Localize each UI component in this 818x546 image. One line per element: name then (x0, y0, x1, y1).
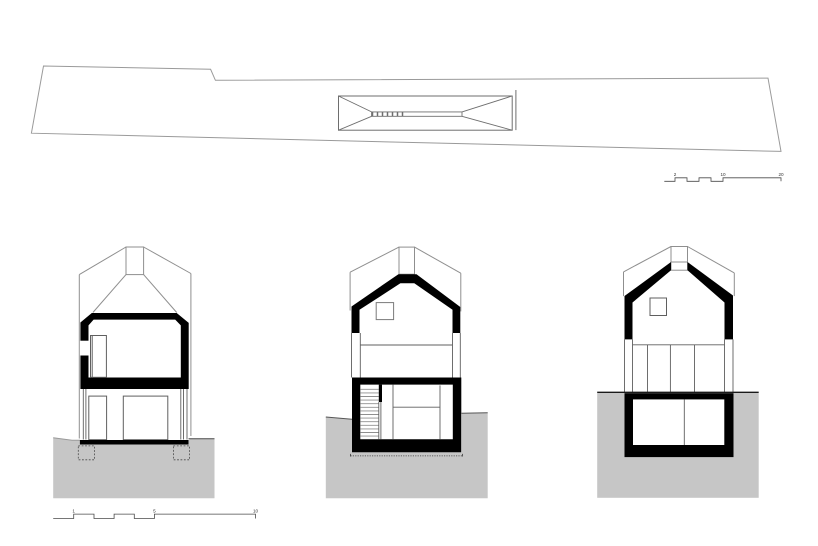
svg-text:20: 20 (778, 172, 784, 177)
svg-text:5: 5 (153, 508, 156, 513)
svg-text:10: 10 (720, 172, 726, 177)
svg-text:1: 1 (72, 508, 75, 513)
svg-text:2: 2 (674, 172, 677, 177)
svg-text:10: 10 (253, 508, 259, 513)
